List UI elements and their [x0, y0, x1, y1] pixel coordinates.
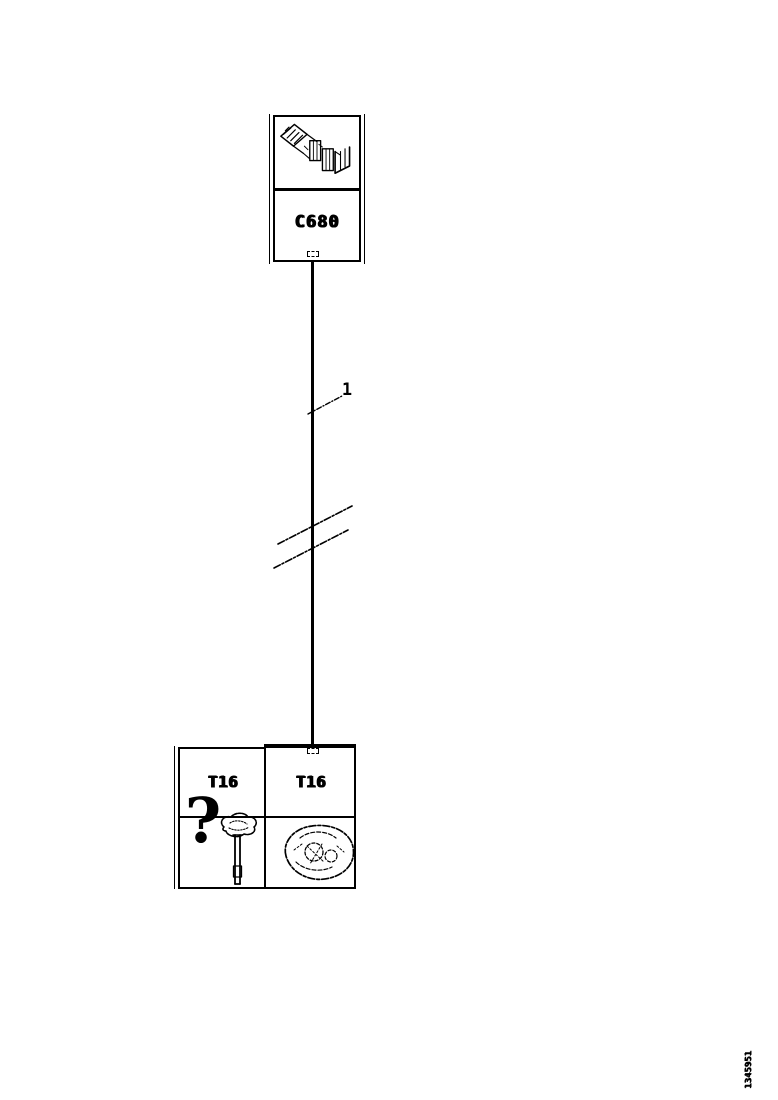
- grid-right-connector-label: T16: [284, 768, 338, 794]
- top-component-box-divider: [273, 188, 361, 191]
- top-connector-label: C680: [275, 207, 359, 237]
- wire-top-pin-mark: [307, 251, 319, 257]
- grid-outer-left-line: [174, 746, 175, 889]
- connector-strip-icon: [277, 119, 357, 185]
- test-probe-icon: [214, 812, 262, 888]
- corner-drawing-number: 1345951: [740, 1040, 758, 1100]
- diagram-page: C680 1 T16 T16 ? 1345951: [0, 0, 778, 1100]
- round-component-icon: [274, 816, 364, 887]
- wire-callout-label: 1: [339, 379, 355, 401]
- topbox-outer-left-line: [269, 114, 270, 264]
- topbox-outer-right-line: [364, 114, 365, 264]
- wire-break-marks: [268, 496, 360, 576]
